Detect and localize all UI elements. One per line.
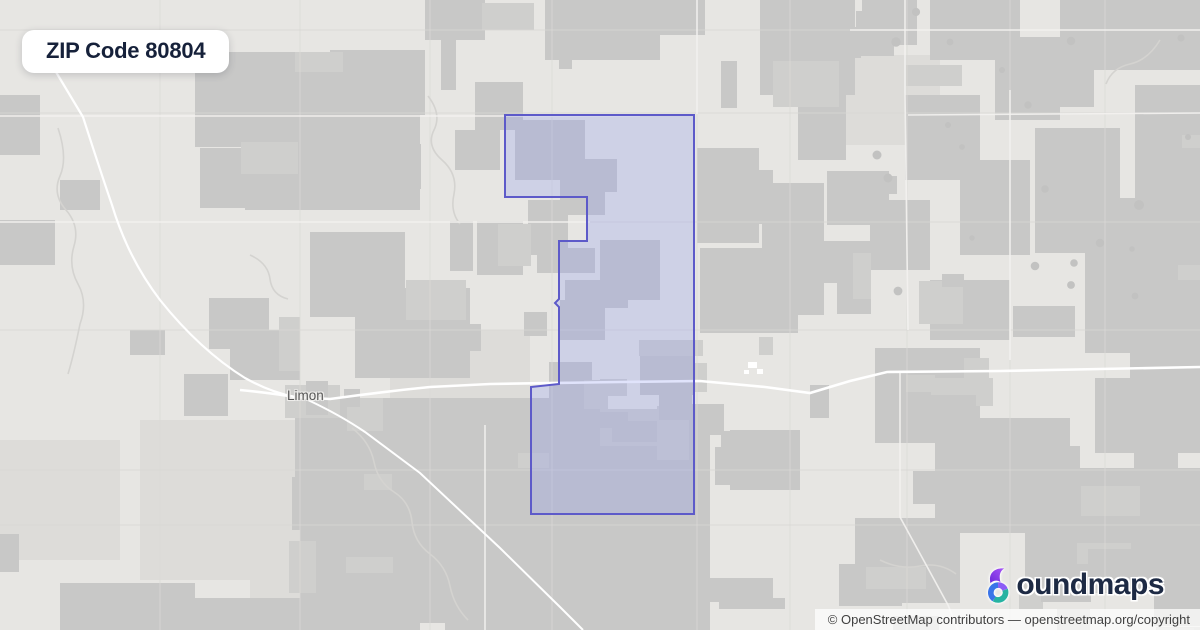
boundmaps-wordmark: oundmaps bbox=[1016, 570, 1164, 600]
map-viewport[interactable]: Limon bbox=[0, 0, 1200, 630]
attribution-bar[interactable]: © OpenStreetMap contributors — openstree… bbox=[815, 609, 1200, 630]
place-label-limon: Limon bbox=[287, 388, 324, 403]
zip-code-badge: ZIP Code 80804 bbox=[22, 30, 229, 73]
map-canvas[interactable] bbox=[0, 0, 1200, 630]
boundmaps-logo: oundmaps bbox=[983, 565, 1164, 605]
boundmaps-b-icon bbox=[983, 567, 1015, 605]
